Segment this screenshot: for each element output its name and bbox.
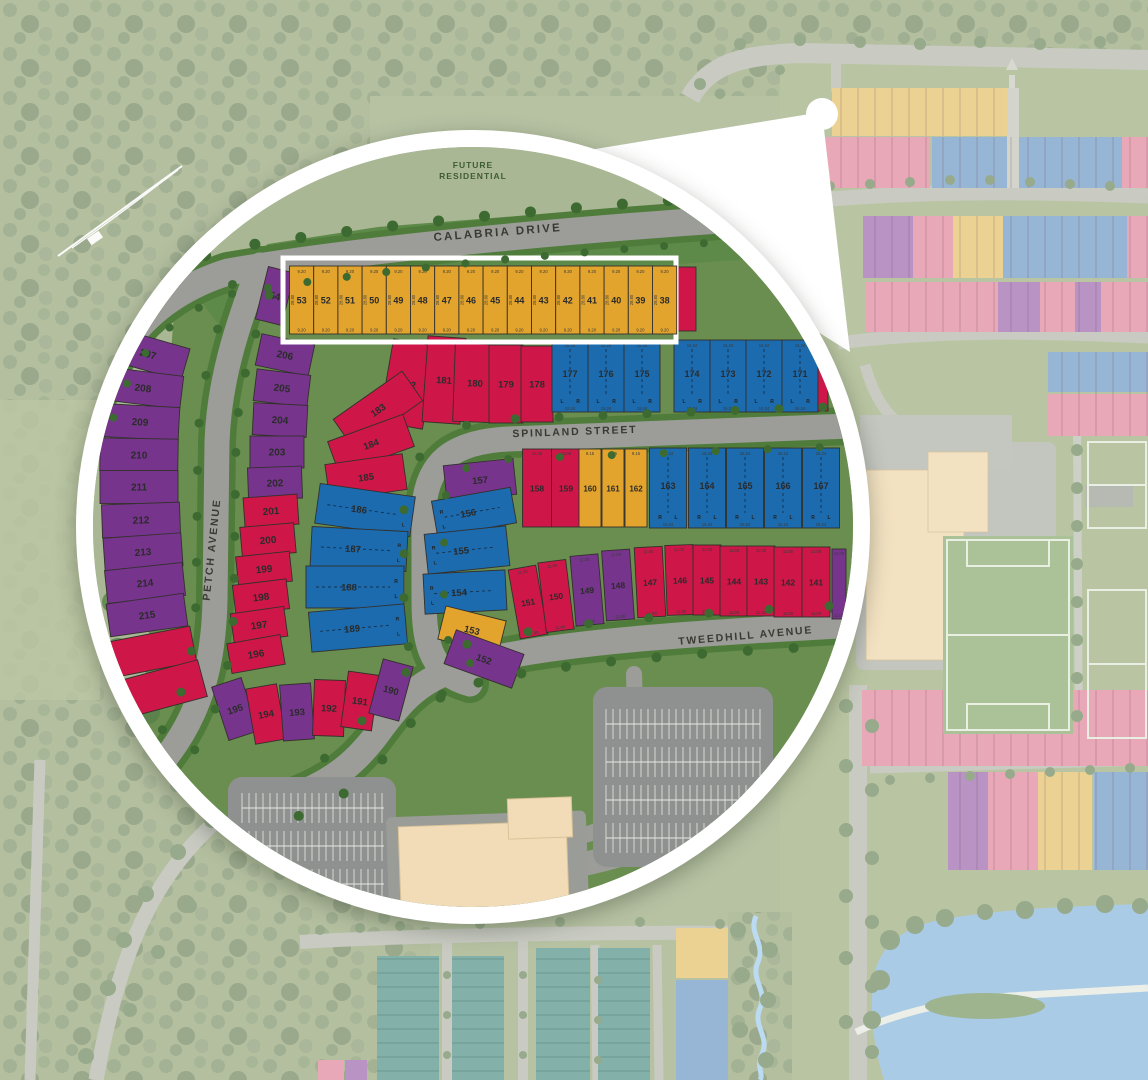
svg-text:198: 198: [252, 591, 270, 604]
svg-text:28.80: 28.80: [435, 294, 440, 305]
lot-163[interactable]: RL16315.2415.24: [650, 448, 687, 528]
tree-icon: [571, 202, 582, 213]
lot-211[interactable]: 211: [100, 471, 178, 504]
svg-text:28.80: 28.80: [508, 294, 513, 305]
svg-text:11.00: 11.00: [643, 549, 654, 555]
svg-text:15.24: 15.24: [759, 343, 770, 348]
svg-text:28.80: 28.80: [338, 294, 343, 305]
lot-187[interactable]: RL187: [310, 527, 408, 572]
tree-icon: [865, 851, 879, 865]
svg-text:9.15: 9.15: [632, 451, 641, 456]
tree-icon: [443, 1011, 451, 1019]
lot-142[interactable]: 14211.0011.00: [774, 547, 802, 617]
lot-210[interactable]: 210: [100, 438, 179, 472]
lot-165[interactable]: RL16515.2415.24: [727, 448, 764, 528]
lot-188[interactable]: RL188: [306, 566, 404, 608]
svg-text:11.00: 11.00: [729, 548, 740, 553]
tree-icon: [211, 705, 220, 714]
tree-icon: [519, 1051, 527, 1059]
lot-178[interactable]: 178: [521, 346, 553, 422]
lot-177[interactable]: LR17715.2415.24: [552, 340, 588, 412]
svg-text:210: 210: [131, 450, 148, 461]
svg-text:49: 49: [393, 296, 403, 306]
tree-icon: [715, 89, 725, 99]
tree-icon: [1045, 767, 1055, 777]
svg-text:163: 163: [660, 481, 675, 491]
lot-50[interactable]: 509.209.2028.80: [362, 266, 386, 334]
tree-icon: [556, 453, 564, 461]
lot-166[interactable]: RL16615.2415.24: [765, 448, 802, 528]
svg-text:28.80: 28.80: [629, 294, 634, 305]
svg-text:146: 146: [673, 575, 688, 585]
tree-icon: [193, 512, 202, 521]
lot-146[interactable]: 14611.0011.00: [665, 545, 695, 616]
tree-icon: [462, 464, 470, 472]
lot-53[interactable]: 539.209.2028.80: [290, 266, 314, 334]
svg-text:186: 186: [350, 504, 367, 517]
tree-icon: [594, 1016, 602, 1024]
tree-icon: [764, 445, 772, 453]
tree-icon: [525, 206, 536, 217]
tree-icon: [404, 642, 413, 651]
lot-192[interactable]: 192: [313, 679, 346, 736]
lot-171[interactable]: LR17115.2415.24: [782, 340, 818, 412]
svg-text:177: 177: [562, 369, 577, 379]
svg-text:11.08: 11.08: [532, 451, 543, 456]
tree-icon: [732, 1022, 748, 1038]
svg-text:189: 189: [344, 623, 361, 635]
tree-icon: [700, 239, 708, 247]
svg-text:15.24: 15.24: [723, 343, 734, 348]
tree-icon: [192, 558, 201, 567]
svg-text:R: R: [811, 515, 815, 521]
svg-text:15.24: 15.24: [740, 451, 751, 456]
tree-icon: [400, 549, 409, 558]
svg-text:28.80: 28.80: [484, 294, 489, 305]
lot-38[interactable]: 389.209.2028.80: [653, 266, 677, 334]
svg-text:176: 176: [598, 369, 613, 379]
svg-text:53: 53: [297, 296, 307, 306]
tree-icon: [151, 945, 165, 959]
svg-text:R: R: [648, 399, 652, 405]
svg-text:R: R: [658, 515, 662, 521]
lot-47[interactable]: 479.209.2028.80: [435, 266, 459, 334]
svg-text:44: 44: [514, 296, 524, 306]
svg-text:R: R: [698, 399, 702, 405]
svg-text:9.20: 9.20: [612, 328, 621, 333]
svg-text:R: R: [612, 399, 616, 405]
svg-text:202: 202: [267, 478, 284, 490]
tree-icon: [440, 591, 448, 599]
tree-icon: [839, 699, 853, 713]
svg-text:47: 47: [442, 296, 452, 306]
tree-icon: [231, 448, 240, 457]
tree-icon: [1071, 520, 1083, 532]
svg-text:11.00: 11.00: [783, 611, 794, 616]
svg-text:15.24: 15.24: [778, 451, 789, 456]
lot-41[interactable]: 419.209.2028.80: [580, 266, 604, 334]
svg-text:11.00: 11.00: [811, 549, 822, 554]
svg-text:9.20: 9.20: [564, 328, 573, 333]
lot-203[interactable]: 203: [250, 436, 304, 468]
svg-text:11.00: 11.00: [611, 552, 622, 558]
tree-icon: [406, 718, 416, 728]
tree-icon: [730, 406, 739, 415]
svg-text:11.00: 11.00: [579, 557, 590, 563]
tree-icon: [715, 919, 725, 929]
tree-icon: [504, 455, 512, 463]
svg-text:40: 40: [611, 296, 621, 306]
tree-icon: [435, 693, 445, 703]
tree-icon: [865, 1045, 879, 1059]
svg-text:28.80: 28.80: [605, 294, 610, 305]
svg-text:R: R: [397, 543, 401, 549]
svg-text:165: 165: [737, 481, 752, 491]
lot-42[interactable]: 429.209.2028.80: [556, 266, 580, 334]
lot-45[interactable]: 459.209.2028.80: [483, 266, 507, 334]
lot-204[interactable]: 204: [252, 403, 308, 438]
tree-icon: [400, 505, 409, 514]
tree-icon: [462, 421, 471, 430]
svg-text:46: 46: [466, 296, 476, 306]
lot-43[interactable]: 439.209.2028.80: [532, 266, 556, 334]
tree-icon: [231, 490, 240, 499]
svg-text:199: 199: [255, 564, 273, 577]
lot-44[interactable]: 449.209.2028.80: [507, 266, 531, 334]
lot-148[interactable]: 14811.0011.00: [602, 549, 635, 621]
svg-text:213: 213: [134, 547, 152, 559]
svg-text:R: R: [697, 515, 701, 521]
lot-48[interactable]: 489.209.2028.80: [411, 266, 435, 334]
svg-text:9.15: 9.15: [586, 451, 595, 456]
svg-text:15.24: 15.24: [601, 406, 612, 411]
svg-text:167: 167: [813, 481, 828, 491]
tree-icon: [341, 226, 352, 237]
tree-icon: [195, 419, 204, 428]
svg-text:45: 45: [490, 296, 500, 306]
lot-158[interactable]: 15811.08: [523, 449, 552, 527]
tree-icon: [138, 886, 154, 902]
svg-text:15.24: 15.24: [759, 406, 770, 411]
tree-icon: [176, 688, 185, 697]
svg-text:212: 212: [133, 515, 150, 527]
tree-icon: [524, 627, 533, 636]
svg-text:9.20: 9.20: [322, 328, 331, 333]
tree-icon: [1071, 444, 1083, 456]
svg-text:164: 164: [699, 481, 714, 491]
lot-149[interactable]: 14911.0011.00: [570, 554, 604, 626]
tree-icon: [839, 951, 853, 965]
tree-icon: [294, 811, 304, 821]
svg-text:R: R: [394, 579, 398, 585]
svg-text:28.80: 28.80: [556, 294, 561, 305]
svg-text:L: L: [789, 515, 792, 521]
tree-icon: [606, 657, 616, 667]
highlighted-lot-row: 539.209.2028.80529.209.2028.80519.209.20…: [283, 258, 677, 342]
tree-icon: [1105, 181, 1115, 191]
svg-text:R: R: [770, 399, 774, 405]
tree-icon: [343, 273, 351, 281]
svg-text:11.00: 11.00: [834, 551, 845, 556]
tree-icon: [870, 970, 890, 990]
lot-parcel[interactable]: 11.0011.00: [832, 549, 846, 619]
lot-parcel[interactable]: [678, 267, 696, 331]
tree-icon: [1057, 898, 1073, 914]
svg-text:200: 200: [259, 535, 277, 547]
svg-text:161: 161: [606, 485, 620, 494]
tree-icon: [863, 1011, 881, 1029]
lot-209[interactable]: 209: [100, 403, 180, 440]
lot-160[interactable]: 1609.15: [579, 449, 601, 527]
svg-text:52: 52: [321, 296, 331, 306]
svg-text:160: 160: [583, 485, 597, 494]
tree-icon: [925, 773, 935, 783]
future-residential-label-1: FUTURE: [453, 160, 493, 170]
tree-icon: [581, 248, 589, 256]
svg-text:L: L: [718, 399, 721, 405]
tree-icon: [617, 199, 628, 210]
lot-172[interactable]: LR17215.2415.24: [746, 340, 782, 412]
future-residential-label-2: RESIDENTIAL: [439, 171, 507, 181]
lot-46[interactable]: 469.209.2028.80: [459, 266, 483, 334]
svg-text:11.00: 11.00: [676, 609, 687, 614]
tree-icon: [402, 668, 411, 677]
svg-text:148: 148: [611, 580, 626, 591]
tree-icon: [555, 413, 564, 422]
tree-icon: [1071, 596, 1083, 608]
tree-icon: [422, 264, 430, 272]
lot-145[interactable]: 14511.0011.00: [693, 545, 721, 615]
tree-icon: [599, 411, 608, 420]
tree-icon: [1016, 901, 1034, 919]
tree-icon: [697, 649, 707, 659]
svg-text:L: L: [433, 560, 437, 566]
svg-text:L: L: [751, 515, 754, 521]
svg-text:28.80: 28.80: [314, 294, 319, 305]
svg-text:9.20: 9.20: [394, 328, 403, 333]
tree-icon: [1085, 765, 1095, 775]
tree-icon: [1071, 710, 1083, 722]
lot-193[interactable]: 193: [280, 683, 315, 741]
svg-text:9.20: 9.20: [636, 269, 645, 274]
svg-text:11.00: 11.00: [702, 547, 713, 552]
svg-text:149: 149: [580, 585, 595, 596]
tree-icon: [824, 601, 833, 610]
tree-icon: [355, 923, 365, 933]
tree-icon: [142, 349, 150, 357]
svg-text:9.20: 9.20: [370, 328, 379, 333]
lot-144[interactable]: 14411.0011.00: [720, 546, 748, 616]
lot-167[interactable]: RL16715.2415.24: [803, 448, 840, 528]
svg-text:11.00: 11.00: [783, 549, 794, 554]
svg-text:28.80: 28.80: [363, 294, 368, 305]
tree-icon: [183, 899, 197, 913]
tree-icon: [415, 452, 424, 461]
svg-text:39: 39: [635, 296, 645, 306]
svg-text:L: L: [632, 399, 635, 405]
svg-text:179: 179: [498, 380, 514, 391]
lot-173[interactable]: LR17315.2415.24: [710, 340, 746, 412]
tree-icon: [320, 754, 329, 763]
svg-text:9.20: 9.20: [443, 269, 452, 274]
tree-icon: [1071, 672, 1083, 684]
lot-49[interactable]: 499.209.2028.80: [386, 266, 410, 334]
svg-text:15.24: 15.24: [702, 522, 713, 527]
tree-icon: [734, 38, 746, 50]
tree-icon: [541, 252, 549, 260]
svg-text:R: R: [735, 515, 739, 521]
tree-icon: [433, 215, 444, 226]
tree-icon: [914, 38, 926, 50]
tree-icon: [1096, 895, 1114, 913]
svg-text:209: 209: [131, 417, 149, 429]
lot-161[interactable]: 1619.15: [602, 449, 624, 527]
svg-text:28.80: 28.80: [532, 294, 537, 305]
svg-text:191: 191: [351, 695, 369, 708]
tree-icon: [764, 605, 773, 614]
tree-icon: [885, 775, 895, 785]
tree-icon: [555, 917, 565, 927]
svg-text:28.80: 28.80: [459, 294, 464, 305]
svg-text:204: 204: [271, 415, 289, 427]
svg-text:9.20: 9.20: [370, 269, 379, 274]
site-plan-viewer: 5420720820921021121221321421520620520420…: [0, 0, 1148, 1080]
svg-text:L: L: [754, 399, 757, 405]
tree-icon: [123, 380, 131, 388]
tree-icon: [251, 329, 260, 338]
lot-175[interactable]: LR17515.2415.24: [624, 340, 660, 412]
tree-icon: [519, 971, 527, 979]
lot-205[interactable]: 205: [253, 369, 310, 407]
tree-icon: [170, 844, 186, 860]
lot-154[interactable]: RL154: [423, 570, 507, 614]
lot-39[interactable]: 399.209.2028.80: [628, 266, 652, 334]
svg-text:15.24: 15.24: [795, 406, 806, 411]
svg-text:11.00: 11.00: [729, 610, 740, 615]
tree-icon: [295, 232, 306, 243]
lot-164[interactable]: RL16415.2415.24: [689, 448, 726, 528]
tree-icon: [190, 745, 199, 754]
magnifier-lens[interactable]: 5420720820921021121221321421520620520420…: [76, 130, 870, 924]
tree-icon: [123, 1003, 137, 1017]
tree-icon: [109, 414, 117, 422]
svg-text:185: 185: [358, 471, 376, 484]
tree-icon: [187, 647, 196, 656]
svg-text:173: 173: [720, 369, 735, 379]
tree-icon: [1125, 763, 1135, 773]
lot-147[interactable]: 14711.0011.00: [634, 546, 666, 617]
tree-icon: [818, 403, 827, 412]
tree-icon: [712, 447, 720, 455]
tree-icon: [395, 921, 405, 931]
location-dot[interactable]: [806, 98, 838, 130]
svg-text:L: L: [397, 558, 400, 564]
tree-icon: [501, 256, 509, 264]
svg-text:211: 211: [131, 483, 148, 494]
lot-176[interactable]: LR17615.2415.24: [588, 340, 624, 412]
svg-text:R: R: [806, 399, 810, 405]
tree-icon: [660, 449, 668, 457]
lot-159[interactable]: 15911.08: [552, 449, 581, 527]
svg-text:11.00: 11.00: [811, 611, 822, 616]
tree-icon: [660, 242, 668, 250]
tree-icon: [466, 659, 474, 667]
tree-icon: [200, 250, 211, 261]
lot-155[interactable]: RL155: [424, 526, 510, 574]
tree-icon: [816, 443, 824, 451]
svg-text:L: L: [790, 399, 793, 405]
lot-parcel[interactable]: [818, 341, 828, 411]
svg-text:15.24: 15.24: [565, 406, 576, 411]
svg-text:9.20: 9.20: [588, 328, 597, 333]
tree-icon: [241, 369, 250, 378]
lot-189[interactable]: RL189: [308, 604, 407, 652]
lot-162[interactable]: 1629.15: [625, 449, 647, 527]
svg-text:172: 172: [756, 369, 771, 379]
tree-icon: [100, 980, 116, 996]
tree-icon: [789, 643, 799, 653]
svg-text:28.80: 28.80: [411, 294, 416, 305]
tree-icon: [835, 640, 845, 650]
tree-icon: [1094, 36, 1106, 48]
tree-icon: [594, 976, 602, 984]
svg-text:28.80: 28.80: [290, 294, 295, 305]
tree-icon: [511, 414, 520, 423]
svg-text:R: R: [773, 515, 777, 521]
tree-icon: [758, 1052, 774, 1068]
tree-icon: [734, 967, 750, 983]
tree-icon: [249, 239, 260, 250]
lot-52[interactable]: 529.209.2028.80: [314, 266, 338, 334]
tree-icon: [694, 78, 706, 90]
svg-text:208: 208: [134, 383, 152, 396]
svg-text:9.20: 9.20: [588, 269, 597, 274]
tree-icon: [444, 636, 452, 644]
svg-text:41: 41: [587, 296, 597, 306]
tree-icon: [762, 942, 778, 958]
svg-text:9.20: 9.20: [515, 269, 524, 274]
tree-icon: [1071, 634, 1083, 646]
tree-icon: [223, 661, 232, 670]
lot-40[interactable]: 409.209.2028.80: [604, 266, 628, 334]
lot-212[interactable]: 212: [101, 502, 180, 538]
svg-text:142: 142: [781, 578, 795, 588]
svg-text:28.80: 28.80: [387, 294, 392, 305]
lot-179[interactable]: 179: [489, 345, 523, 423]
svg-text:L: L: [431, 601, 434, 607]
lot-174[interactable]: LR17415.2415.24: [674, 340, 710, 412]
tree-icon: [443, 971, 451, 979]
tree-icon: [561, 662, 571, 672]
tree-icon: [230, 532, 239, 541]
svg-text:L: L: [827, 515, 830, 521]
svg-text:150: 150: [548, 591, 564, 603]
tree-icon: [116, 932, 132, 948]
tree-icon: [865, 179, 875, 189]
tree-icon: [358, 716, 367, 725]
svg-text:9.20: 9.20: [661, 328, 670, 333]
svg-text:L: L: [397, 631, 401, 637]
tree-icon: [865, 915, 879, 929]
tree-icon: [229, 617, 238, 626]
tree-icon: [642, 409, 651, 418]
svg-text:174: 174: [684, 369, 699, 379]
tree-icon: [462, 640, 471, 649]
svg-text:15.24: 15.24: [702, 451, 713, 456]
tree-icon: [794, 34, 806, 46]
svg-text:L: L: [560, 399, 563, 405]
tree-icon: [974, 36, 986, 48]
